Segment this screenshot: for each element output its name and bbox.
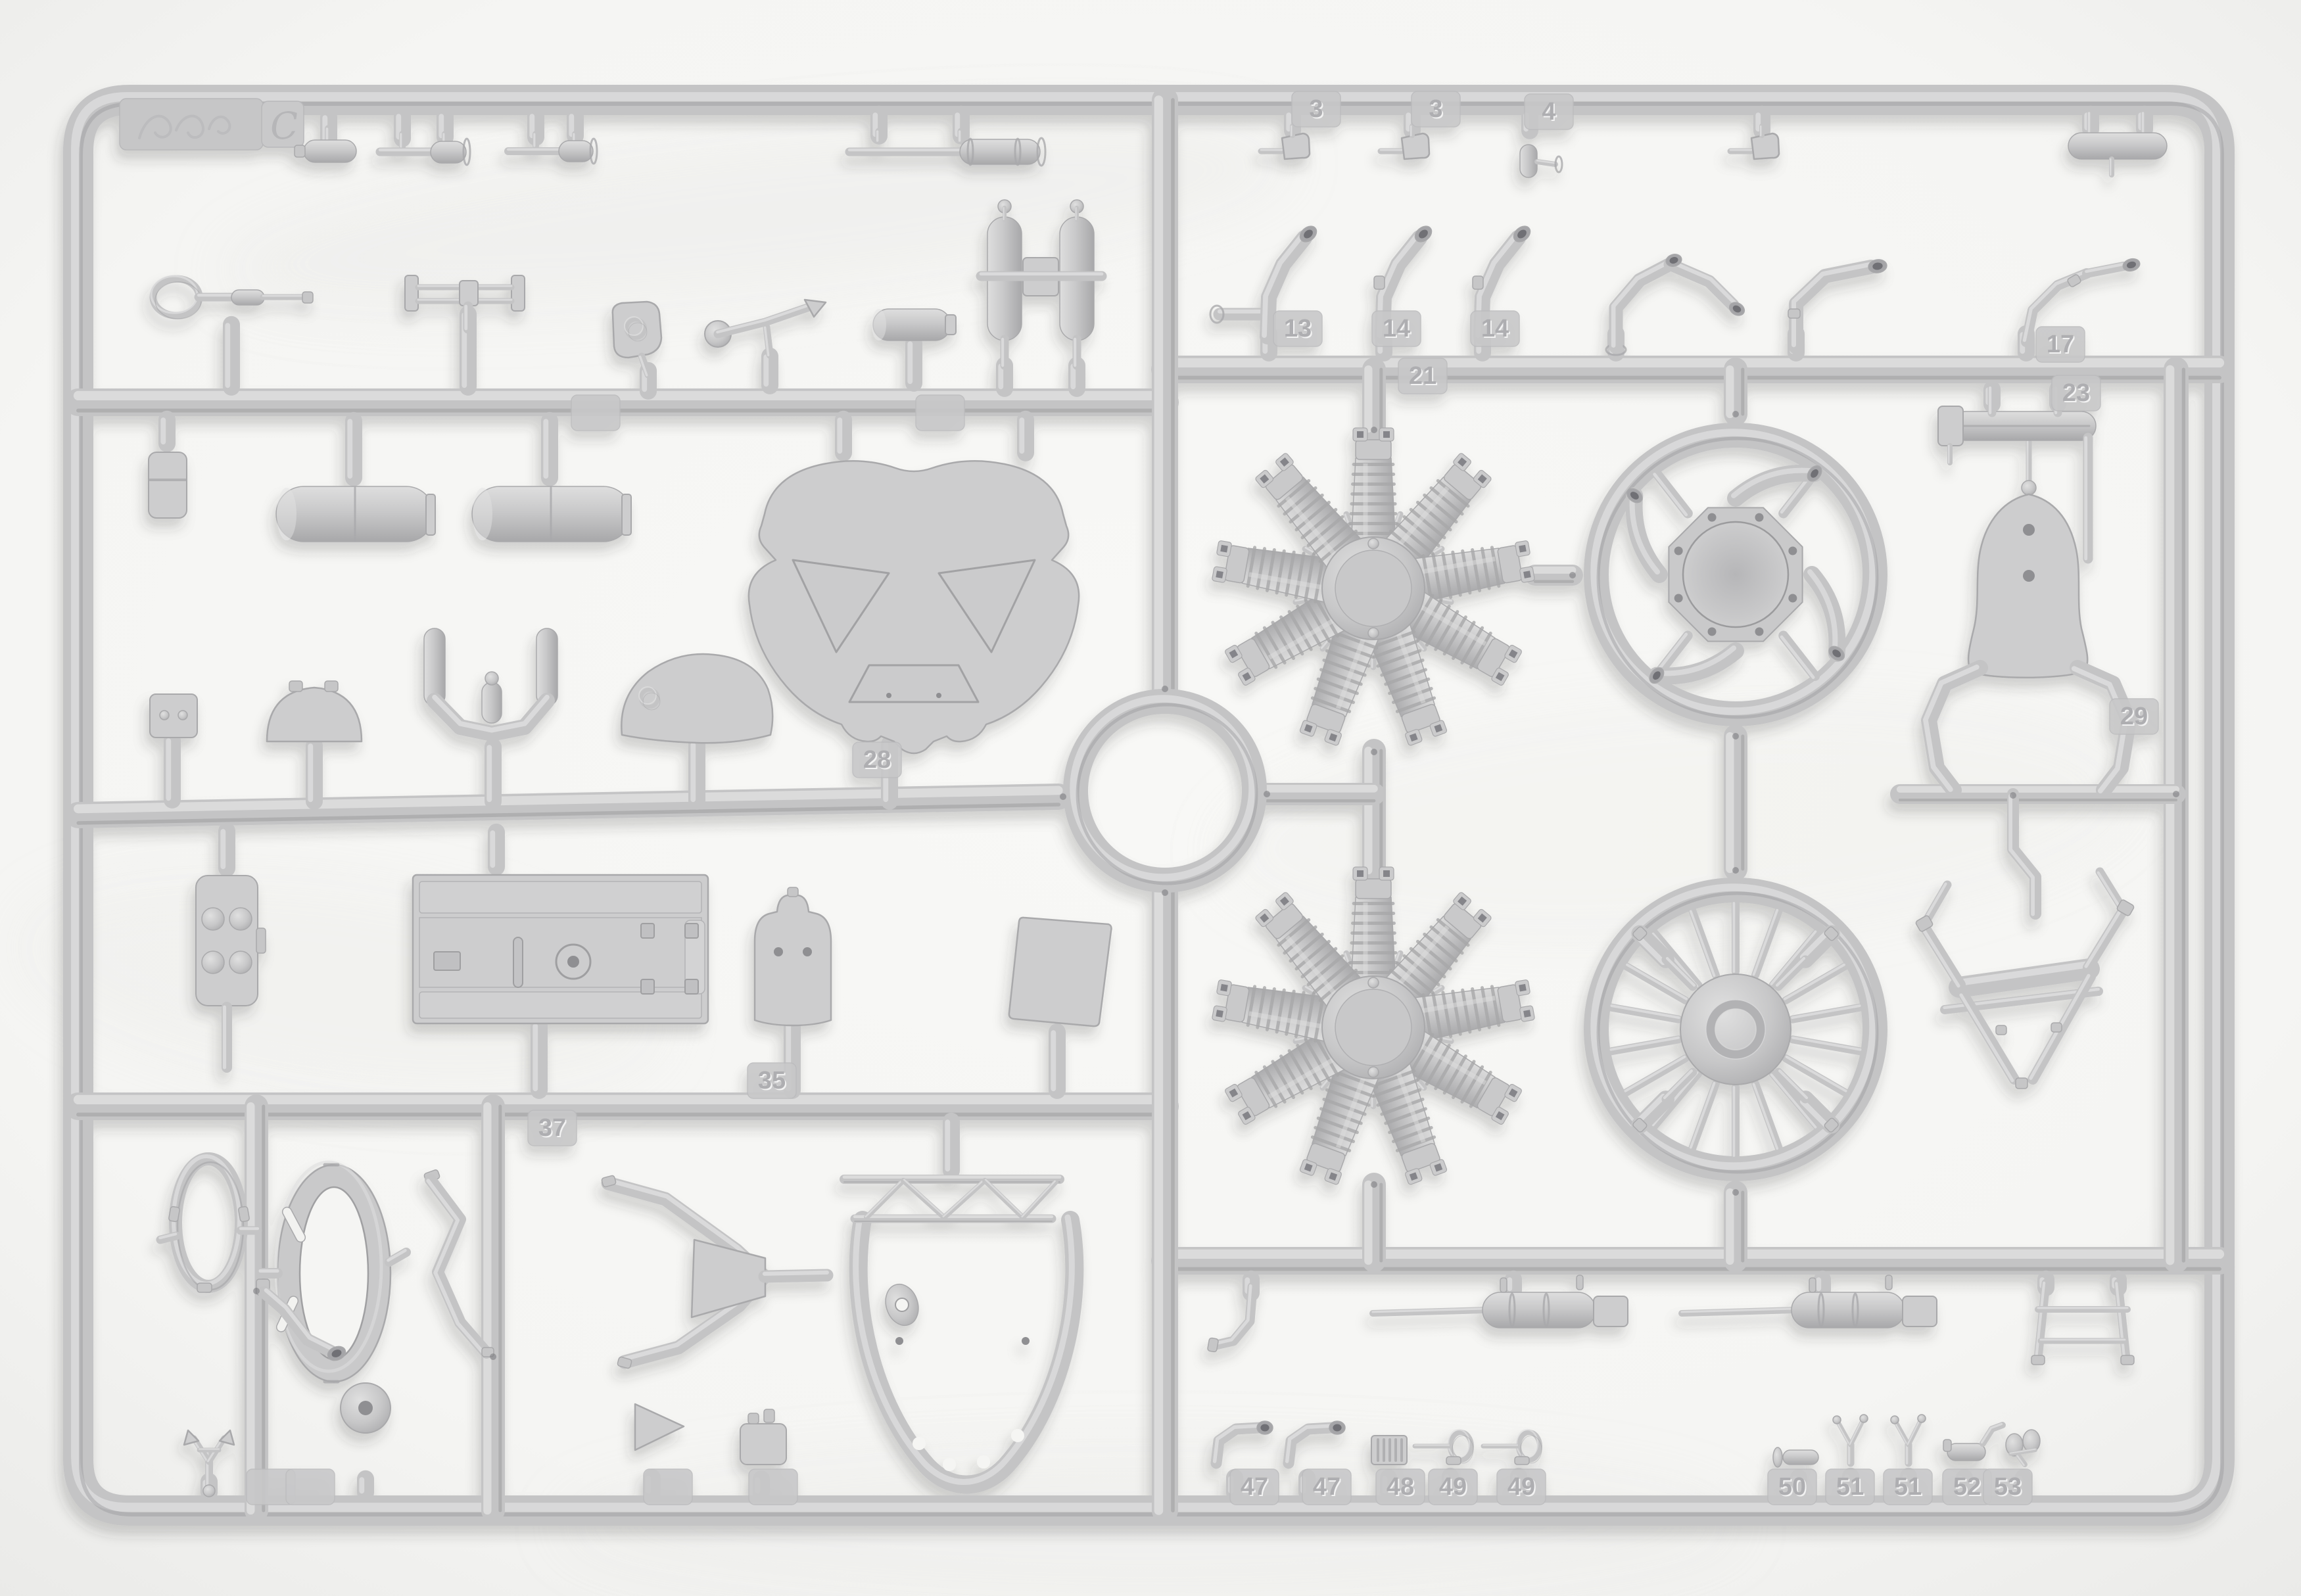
- svg-text:3: 3: [1429, 95, 1442, 123]
- part-number-tab: 3737: [528, 1110, 577, 1146]
- part-number-tab: 1313: [1273, 311, 1322, 346]
- part-number-tab: 5353: [1983, 1469, 2032, 1505]
- part-number-tab: 1414: [1471, 311, 1519, 346]
- part-number-tab: 5050: [1768, 1469, 1816, 1505]
- svg-text:51: 51: [1894, 1473, 1922, 1501]
- svg-text:13: 13: [1284, 315, 1312, 342]
- part-number-tab: [571, 395, 620, 431]
- logo-tab: [120, 99, 263, 150]
- part-number-tab: 3535: [747, 1063, 796, 1098]
- part-number-tab: [916, 395, 964, 431]
- svg-text:53: 53: [1994, 1473, 2022, 1501]
- part-number-tab: 5151: [1884, 1469, 1932, 1505]
- part-number-tab: 4747: [1230, 1469, 1279, 1505]
- svg-text:4: 4: [1542, 98, 1555, 126]
- svg-text:37: 37: [538, 1114, 566, 1142]
- part-number-tab: [644, 1469, 692, 1505]
- svg-text:48: 48: [1387, 1473, 1414, 1501]
- svg-text:35: 35: [758, 1067, 786, 1094]
- part-number-tab: 5151: [1826, 1469, 1874, 1505]
- svg-text:49: 49: [1507, 1473, 1535, 1501]
- svg-text:47: 47: [1241, 1473, 1268, 1501]
- part-number-tab: 2828: [853, 742, 901, 778]
- part-number-tab: 2929: [2110, 699, 2158, 734]
- part-number-tab: 2121: [1398, 358, 1447, 394]
- part-number-tab: 4949: [1429, 1469, 1477, 1505]
- svg-text:3: 3: [1309, 95, 1323, 123]
- svg-text:29: 29: [2120, 703, 2148, 730]
- part-number-tab: 1414: [1372, 311, 1421, 346]
- svg-text:14: 14: [1383, 315, 1410, 342]
- svg-text:47: 47: [1313, 1473, 1340, 1501]
- svg-text:49: 49: [1439, 1473, 1467, 1501]
- ammo-box: [150, 694, 197, 738]
- sprue-letter-label: C: [269, 105, 299, 149]
- part-number-tab: 4949: [1497, 1469, 1546, 1505]
- sprue-scene: 3333441313141414142121232317172828292935…: [0, 0, 2301, 1596]
- fuel-tank-right: [472, 486, 631, 542]
- canvas-pouch: [149, 452, 187, 518]
- part-number-tab: 33: [1411, 91, 1460, 127]
- access-panel-plate: [1009, 918, 1112, 1026]
- svg-text:50: 50: [1778, 1473, 1806, 1501]
- svg-text:17: 17: [2047, 331, 2074, 358]
- svg-text:21: 21: [1409, 362, 1436, 390]
- part-number-tab: 2323: [2052, 375, 2100, 411]
- svg-text:28: 28: [863, 746, 891, 774]
- svg-text:52: 52: [1953, 1473, 1981, 1501]
- part-number-tab: [749, 1469, 797, 1505]
- radiator-grille-48: [1371, 1436, 1407, 1465]
- fuel-tank-left: [276, 486, 435, 542]
- part-number-tab: 4747: [1302, 1469, 1351, 1505]
- svg-text:14: 14: [1481, 315, 1509, 342]
- bomb-50: [1773, 1447, 1818, 1467]
- part-number-tab: 44: [1525, 94, 1573, 129]
- cockpit-floor-panel: [413, 875, 708, 1023]
- svg-text:23: 23: [2062, 379, 2090, 407]
- part-number-tab: 4848: [1376, 1469, 1425, 1505]
- pulley-disc: [341, 1383, 391, 1433]
- small-float-tank: [872, 309, 956, 340]
- part-number-tab: 33: [1292, 91, 1340, 127]
- part-number-tab: 1717: [2036, 327, 2085, 362]
- svg-text:51: 51: [1836, 1473, 1864, 1501]
- part-number-tab: [286, 1469, 335, 1505]
- sprue-photograph: 3333441313141414142121232317172828292935…: [0, 0, 2301, 1596]
